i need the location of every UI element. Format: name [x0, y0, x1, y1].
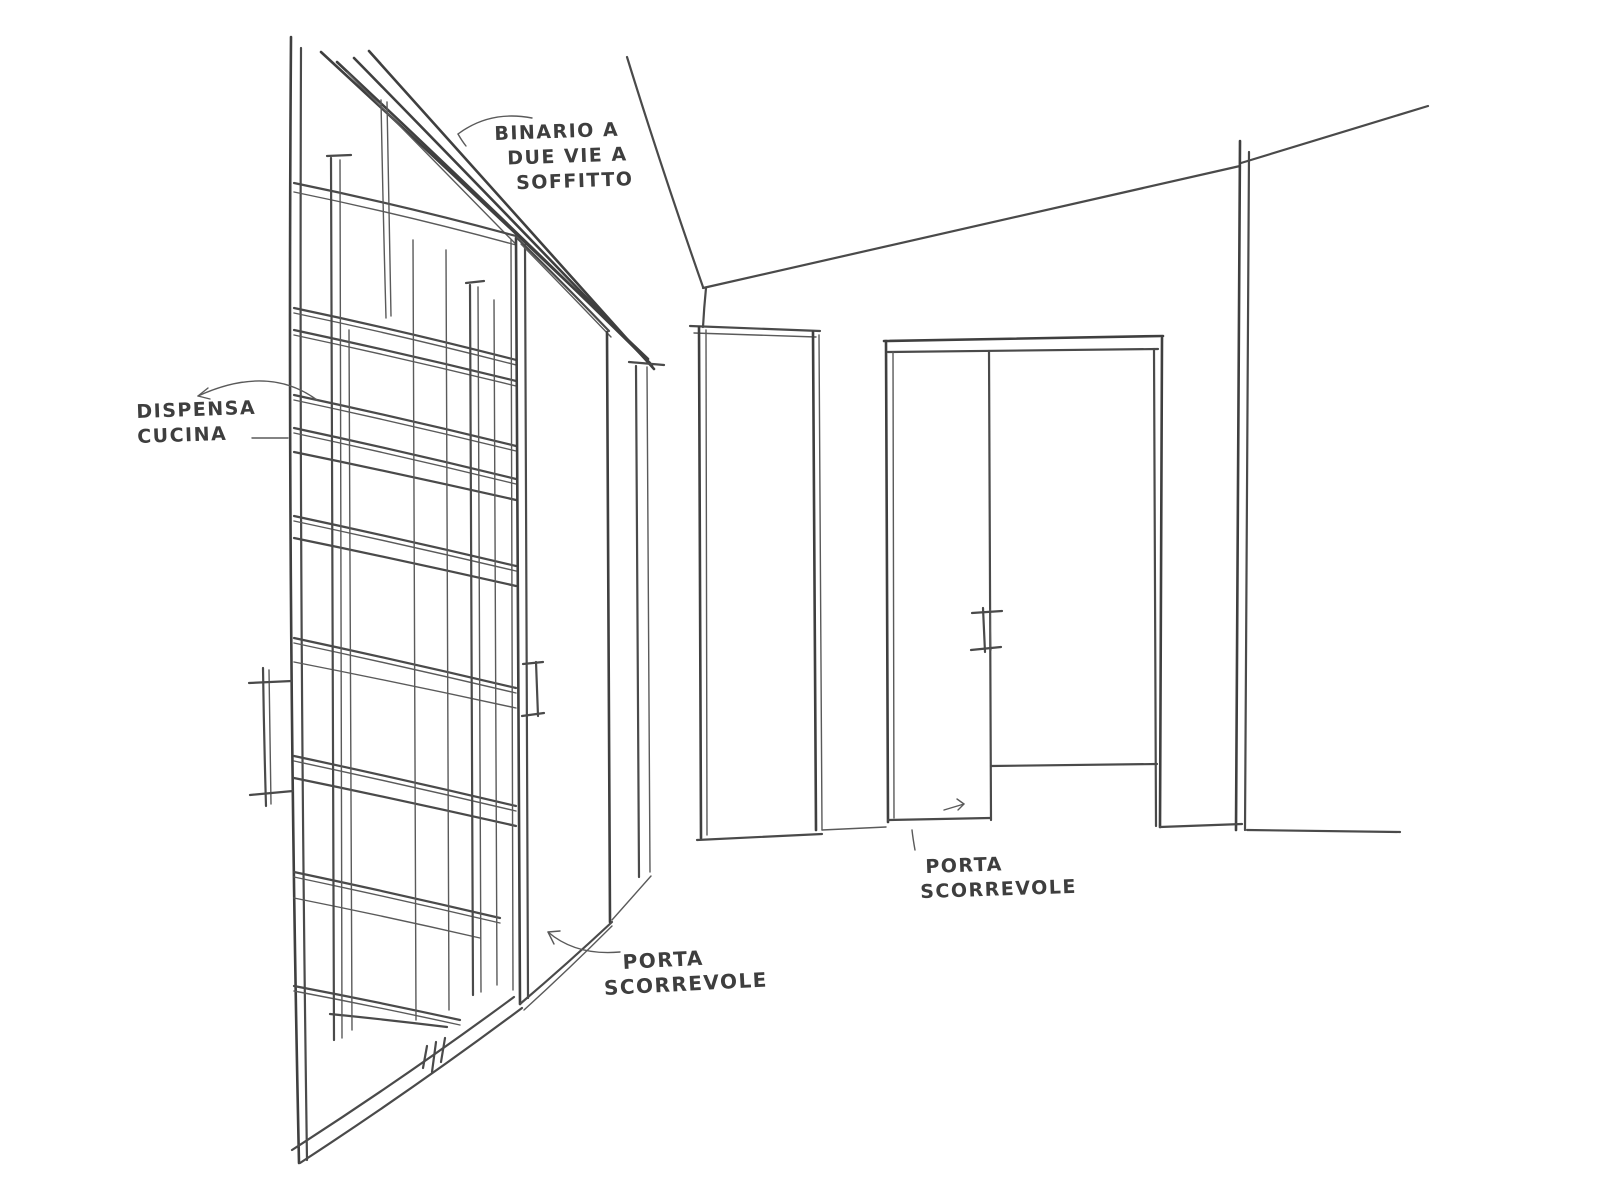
- label-line: SOFFITTO: [516, 167, 634, 196]
- sliding-door-panel: [516, 237, 612, 1010]
- sketch-canvas: BINARIO A DUE VIE A SOFFITTO DISPENSA CU…: [0, 0, 1600, 1200]
- label-line: DISPENSA: [136, 397, 256, 423]
- wall-pier: [690, 326, 886, 840]
- label-porta-scorrevole-center: PORTA SCORREVOLE: [622, 942, 769, 999]
- double-pocket-door: [884, 336, 1163, 827]
- label-line: PORTA: [622, 946, 704, 974]
- slide-direction-arrow: [944, 799, 964, 810]
- label-dispensa-cucina: DISPENSA CUCINA: [136, 396, 257, 450]
- label-porta-scorrevole-right: PORTA SCORREVOLE: [925, 850, 1077, 905]
- label-line: BINARIO A: [494, 119, 620, 145]
- left-pull-handle: [249, 668, 293, 806]
- right-wall-corner: [1160, 141, 1400, 832]
- pocket-door-handle: [971, 608, 1002, 652]
- ceiling-track-lines: [321, 51, 664, 369]
- label-line: CUCINA: [137, 421, 258, 450]
- leader-tick-porta-destra: [912, 830, 915, 850]
- label-line: PORTA: [925, 853, 1003, 878]
- line-drawing: [0, 0, 1600, 1200]
- shelving-end-panel: [612, 366, 651, 920]
- label-binario-track: BINARIO A DUE VIE A SOFFITTO: [494, 117, 634, 197]
- ceiling-lines: [627, 57, 1428, 327]
